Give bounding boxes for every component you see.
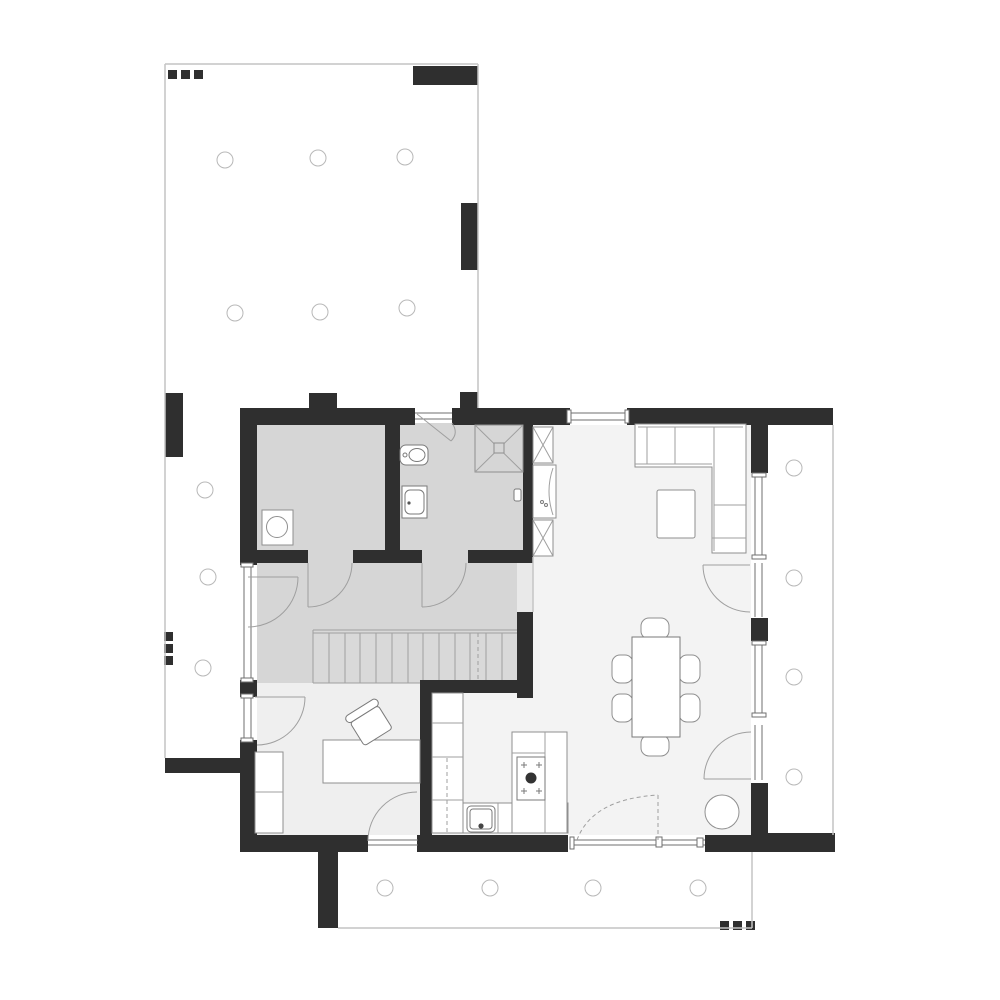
floor-plan <box>0 0 1000 1000</box>
kitchen-tall-units <box>432 693 463 833</box>
marker-square-tl-2 <box>181 70 190 79</box>
terrace-circle-8 <box>195 660 211 676</box>
wall-kitchen-north <box>420 680 533 693</box>
wall-hall-seg1 <box>240 550 308 563</box>
window-left-2-frame-1 <box>241 738 253 742</box>
door-glass-bottom-wide-frame-2 <box>697 838 703 847</box>
terrace-bar-top-right <box>413 66 478 85</box>
bath-door-handle <box>514 489 521 501</box>
kitchen-sink-drain <box>478 823 483 828</box>
terrace-circle-13 <box>377 880 393 896</box>
window-left-1-frame-0 <box>241 563 253 567</box>
wall-storage-bath <box>385 423 400 550</box>
door-glass-bottom-wide-frame-1 <box>656 837 662 847</box>
floor-plan-canvas <box>0 0 1000 1000</box>
hall-door-gap-storage <box>308 550 353 563</box>
wall-right-seg2 <box>751 618 768 641</box>
wall-hall-seg3 <box>468 550 533 563</box>
wall-top-left <box>240 408 415 425</box>
terrace-circle-7 <box>200 569 216 585</box>
desk <box>323 740 420 783</box>
window-right-2-frame-1 <box>752 713 766 717</box>
terrace-circle-15 <box>585 880 601 896</box>
wall-left-upper <box>240 425 257 565</box>
dining-chair-bottom <box>641 735 669 756</box>
window-right-2-frame-0 <box>752 641 766 645</box>
window-right-1-frame-0 <box>752 473 766 477</box>
dining-chair-right-1 <box>679 655 700 683</box>
stovetop-burner-dot <box>526 773 537 784</box>
terrace-circle-4 <box>312 304 328 320</box>
dining-chair-top <box>641 618 669 639</box>
window-left-1-frame-1 <box>241 678 253 682</box>
terrace-bar-left <box>165 393 183 457</box>
terrace-circle-10 <box>786 570 802 586</box>
wall-bottom-mid <box>417 835 568 852</box>
dining-table <box>632 637 680 737</box>
hall-living-passage-floor <box>517 563 533 612</box>
wall-right-seg3 <box>751 783 768 835</box>
wall-bottom-left <box>240 835 368 852</box>
terrace-circle-3 <box>227 305 243 321</box>
tall-unit-fridge <box>533 465 556 518</box>
hall-door-gap-bath <box>422 550 468 563</box>
wall-hall-seg2 <box>353 550 422 563</box>
terrace-bar-bottom-right <box>752 833 835 852</box>
wall-kitchen-west <box>420 693 432 835</box>
hall-floor <box>257 563 533 630</box>
terrace-circle-14 <box>482 880 498 896</box>
terrace-circle-1 <box>310 150 326 166</box>
wall-top-mid <box>452 408 570 425</box>
round-stove <box>705 795 739 829</box>
dining-chair-left-1 <box>612 655 633 683</box>
terrace-circle-5 <box>399 300 415 316</box>
wall-stub-terrace-edge <box>460 392 478 409</box>
window-top-frame-0 <box>567 410 571 423</box>
terrace-bar-right <box>461 203 478 270</box>
terrace-circle-9 <box>786 460 802 476</box>
wall-top-right <box>627 408 833 425</box>
terrace-circle-11 <box>786 669 802 685</box>
wall-bath-right <box>523 423 533 557</box>
terrace-circle-0 <box>217 152 233 168</box>
terrace-circle-12 <box>786 769 802 785</box>
marker-square-tl-3 <box>194 70 203 79</box>
dining-chair-left-2 <box>612 694 633 722</box>
terrace-bar-bottom-left <box>165 758 240 773</box>
wall-right-seg1 <box>751 425 768 473</box>
toilet-body <box>400 445 428 465</box>
terrace-stub-bottom <box>318 852 338 928</box>
marker-square-tl-1 <box>168 70 177 79</box>
terrace-circle-6 <box>197 482 213 498</box>
terrace-circle-16 <box>690 880 706 896</box>
window-top-frame-1 <box>625 410 629 423</box>
door-glass-bottom-wide-frame-0 <box>570 837 574 849</box>
shower-drain <box>494 443 504 453</box>
coffee-table <box>657 490 695 538</box>
dining-chair-right-2 <box>679 694 700 722</box>
sink-body <box>402 486 427 518</box>
window-left-2-frame-0 <box>241 694 253 698</box>
wall-stub-above-storage <box>309 393 337 409</box>
sink-drain-dot <box>407 501 410 504</box>
window-right-1-frame-1 <box>752 555 766 559</box>
terrace-circle-2 <box>397 149 413 165</box>
